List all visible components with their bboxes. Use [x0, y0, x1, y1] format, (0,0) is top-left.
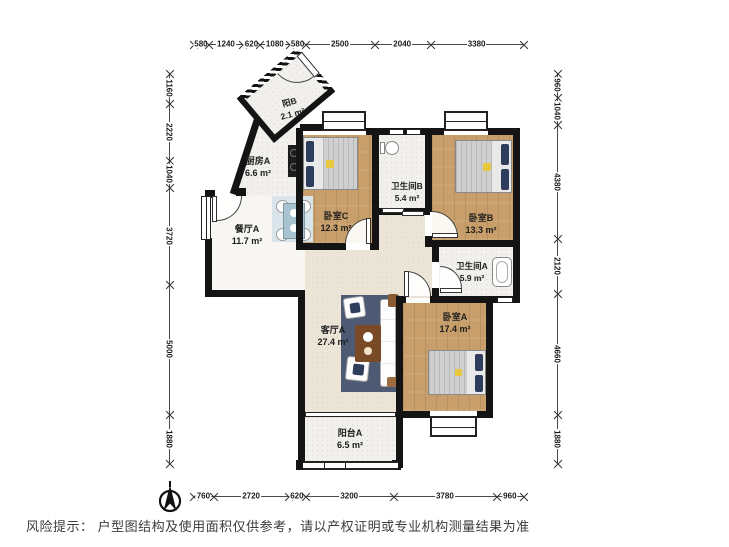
table-plate — [363, 332, 373, 342]
dim-tick — [260, 44, 261, 45]
wall — [430, 296, 493, 303]
wall — [298, 290, 305, 418]
room-name: 卧室C — [320, 210, 351, 222]
room-area: 12.3 m² — [320, 222, 351, 234]
dim-tick — [393, 496, 394, 497]
room-name: 卫生间B — [391, 180, 423, 192]
room-area: 6.5 m² — [337, 439, 363, 451]
room-area: 11.7 m² — [232, 235, 263, 247]
bed-bedroom-a — [428, 350, 486, 395]
dim-tick — [557, 98, 558, 99]
wall — [486, 296, 493, 418]
dim-value: 3200 — [339, 492, 359, 501]
wall — [236, 188, 246, 196]
dim-value: 960 — [502, 492, 517, 501]
risk-disclaimer: 风险提示： 户型图结构及使用面积仅供参考，请以产权证明或专业机构测量结果为准 — [26, 516, 530, 535]
wall — [296, 128, 303, 250]
bed-pillow — [501, 144, 509, 165]
dim-tick — [557, 293, 558, 294]
dim-tick — [169, 284, 170, 285]
door-leaf-bedroom-c — [366, 218, 371, 244]
window-dining — [201, 196, 211, 240]
dim-tick — [374, 44, 375, 45]
bed-pillow — [501, 169, 509, 190]
window-bedroom-b — [444, 111, 488, 131]
room-area: 27.4 m² — [317, 336, 348, 348]
room-name: 卫生间A — [456, 260, 488, 272]
room-area: 17.4 m² — [439, 323, 470, 335]
sofa — [380, 299, 396, 387]
dimension-line-left: 116022201040372050001880 — [162, 73, 176, 463]
dim-tick — [557, 73, 558, 74]
sliding-door-balcony-a — [305, 412, 396, 417]
dim-value: 3380 — [467, 40, 487, 49]
room-label-bedroom-b: 卧室B 13.3 m² — [465, 212, 496, 236]
floorplan: 阳B 2.1 m² 厨房A 6.6 m² 卧室C 12.3 m² 卫生间B 5.… — [0, 0, 729, 547]
dim-value: 2220 — [165, 122, 174, 142]
dim-value: 2720 — [241, 492, 261, 501]
room-name: 厨房A — [245, 155, 271, 167]
room-area: 5.9 m² — [456, 272, 488, 284]
room-name: 卧室B — [465, 212, 496, 224]
table-plate — [364, 347, 372, 355]
room-area: 5.4 m² — [391, 192, 423, 204]
wall — [300, 124, 324, 131]
dim-tick — [305, 496, 306, 497]
window-bedroom-c — [322, 111, 366, 131]
window-bathroom-a — [497, 297, 513, 303]
bed-bedroom-c — [303, 137, 358, 190]
dim-value: 960 — [553, 78, 562, 93]
dim-tick — [557, 125, 558, 126]
wall — [432, 240, 439, 262]
dim-value: 2040 — [392, 40, 412, 49]
north-compass-icon — [152, 478, 188, 518]
dim-tick — [169, 103, 170, 104]
door-leaf-bedroom-a — [404, 271, 409, 297]
dim-value: 1880 — [553, 429, 562, 449]
dim-value: 4660 — [553, 344, 562, 364]
room-name: 阳台A — [337, 427, 363, 439]
bed-bedroom-b — [455, 140, 512, 193]
dim-tick — [193, 496, 194, 497]
room-label-living-a: 客厅A 27.4 m² — [317, 324, 348, 348]
room-area: 13.3 m² — [465, 224, 496, 236]
dim-value: 1880 — [165, 429, 174, 449]
dim-value: 2120 — [553, 256, 562, 276]
dim-tick — [169, 73, 170, 74]
wall — [205, 290, 305, 297]
dim-value: 3720 — [165, 226, 174, 246]
room-label-kitchen-a: 厨房A 6.6 m² — [245, 155, 271, 179]
wall — [425, 240, 520, 247]
wall — [372, 128, 379, 250]
door-leaf-bathroom-a — [440, 288, 462, 293]
toilet — [380, 141, 400, 155]
window-bathroom-b-small — [389, 129, 404, 135]
bed-pillow — [475, 354, 483, 371]
bathtub — [492, 257, 512, 287]
toilet-bowl — [385, 141, 399, 155]
bed-accent — [483, 163, 491, 171]
dim-tick — [169, 188, 170, 189]
dim-tick — [523, 496, 524, 497]
dim-value: 2500 — [330, 40, 350, 49]
sliding-door-bathroom-b — [382, 208, 404, 213]
window-balcony-a — [303, 461, 398, 470]
dim-tick — [523, 44, 524, 45]
dim-tick — [557, 463, 558, 464]
dim-tick — [557, 238, 558, 239]
bed-accent — [326, 160, 334, 168]
dim-tick — [209, 44, 210, 45]
room-area: 6.6 m² — [245, 167, 271, 179]
dim-value: 1040 — [165, 164, 174, 184]
dim-value: 1160 — [165, 78, 174, 97]
bed-pillow — [475, 375, 483, 392]
door-leaf-kitchen — [212, 196, 217, 222]
wall — [513, 128, 520, 303]
window-bathroom-b-small — [406, 129, 421, 135]
room-label-balcony-a: 阳台A 6.5 m² — [337, 427, 363, 451]
room-label-bedroom-c: 卧室C 12.3 m² — [320, 210, 351, 234]
room-label-bathroom-a: 卫生间A 5.9 m² — [456, 260, 488, 284]
sliding-door-bathroom-b — [402, 211, 424, 216]
coffee-table — [355, 325, 381, 362]
armchair-cushion — [349, 302, 360, 313]
bed-pillow — [306, 141, 314, 162]
room-name: 餐厅A — [232, 223, 263, 235]
wall — [370, 243, 379, 250]
room-label-dining-a: 餐厅A 11.7 m² — [232, 223, 263, 247]
dim-tick — [306, 44, 307, 45]
armchair-cushion — [352, 364, 364, 376]
room-label-bedroom-a: 卧室A 17.4 m² — [439, 311, 470, 335]
dim-tick — [430, 44, 431, 45]
wall — [477, 411, 493, 418]
dim-tick — [557, 414, 558, 415]
dim-value: 1040 — [553, 101, 562, 121]
dim-tick — [169, 161, 170, 162]
room-name: 客厅A — [317, 324, 348, 336]
bathtub-basin — [496, 261, 508, 283]
wall — [425, 128, 432, 212]
dim-value: 4380 — [553, 172, 562, 192]
dim-value: 3780 — [435, 492, 455, 501]
armchair — [343, 296, 367, 320]
wall — [205, 238, 212, 297]
dim-value: 5000 — [165, 339, 174, 359]
dim-tick — [497, 496, 498, 497]
dim-value: 1080 — [265, 40, 285, 49]
wall — [296, 243, 346, 250]
window-bedroom-a — [430, 416, 477, 437]
room-label-bathroom-b: 卫生间B 5.4 m² — [391, 180, 423, 204]
room-name: 卧室A — [439, 311, 470, 323]
bed-accent — [455, 369, 462, 376]
dimension-line-right: 96010404380212046601880 — [550, 73, 564, 463]
dim-tick — [169, 414, 170, 415]
bed-pillow — [306, 166, 314, 187]
door-leaf-bedroom-b — [432, 233, 458, 238]
dim-tick — [214, 496, 215, 497]
wall — [396, 296, 403, 416]
dimension-line-top: 58012406201080580250020403380 — [193, 37, 523, 51]
dim-value: 1240 — [216, 40, 236, 49]
dim-tick — [169, 463, 170, 464]
dimension-line-bottom: 760272062032003780960 — [193, 489, 523, 503]
